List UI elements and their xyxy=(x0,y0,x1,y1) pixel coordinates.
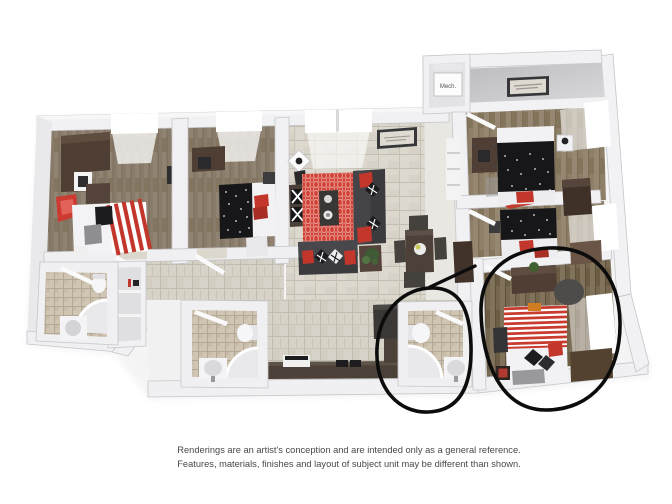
svg-text:Mech.: Mech. xyxy=(440,84,457,90)
svg-text:Features, materials, finishes: Features, materials, finishes and layout… xyxy=(177,459,521,469)
svg-text:Renderings are an artist's con: Renderings are an artist's conception an… xyxy=(177,445,520,455)
